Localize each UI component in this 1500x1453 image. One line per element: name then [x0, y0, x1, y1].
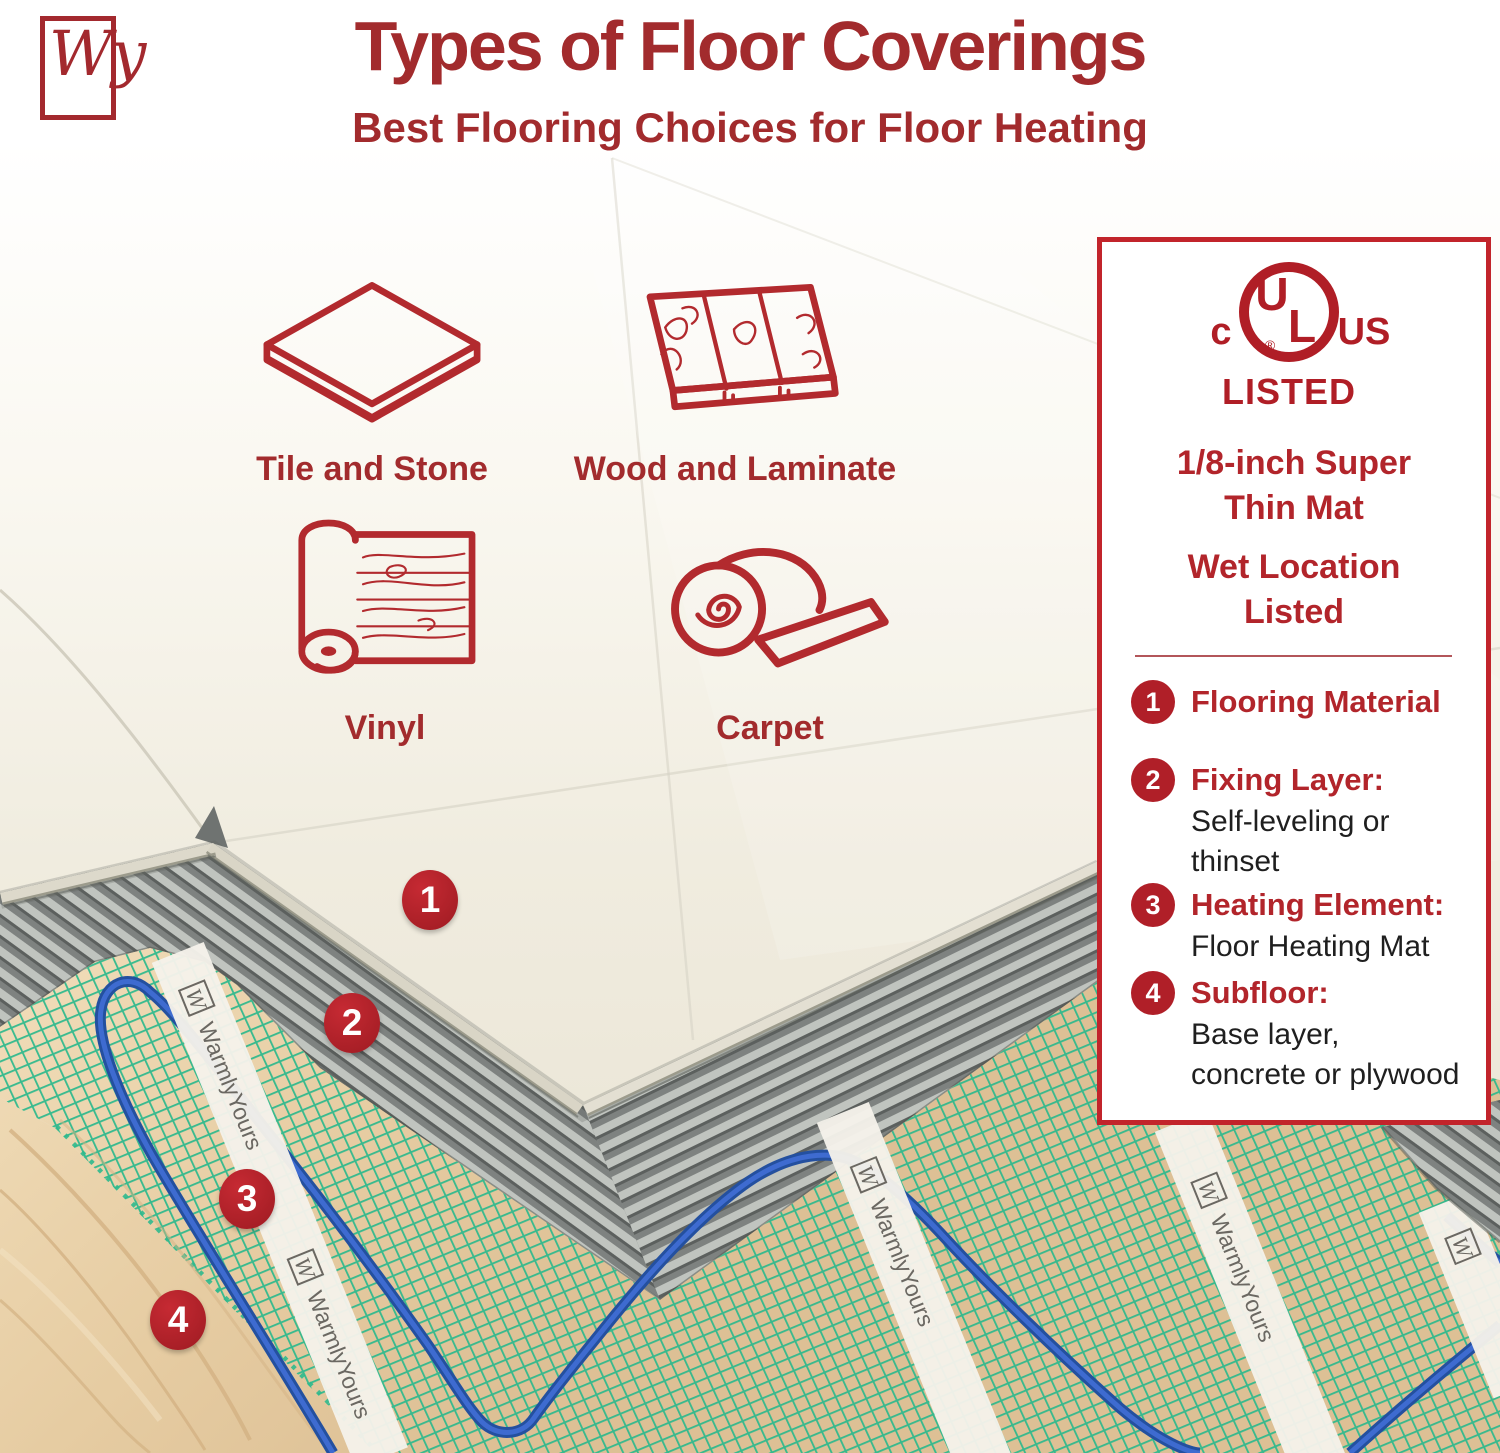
infographic-page: W WarmlyYours W WarmlyYours W WarmlyYour… — [0, 0, 1500, 1453]
wet-location-heading: Wet Location Listed — [1102, 545, 1486, 635]
info-panel: U L ® c US LISTED 1/8-inch Super Thin Ma… — [1097, 237, 1491, 1125]
mat-heading: 1/8-inch Super Thin Mat — [1102, 441, 1486, 531]
legend-number-badge: 3 — [1131, 883, 1175, 927]
ul-listed-icon: U L ® c US LISTED — [1164, 248, 1414, 416]
flooring-type-tile: Tile and Stone — [222, 272, 522, 489]
svg-text:®: ® — [1265, 337, 1276, 353]
marker-subfloor: 4 — [150, 1290, 206, 1350]
flooring-type-label: Tile and Stone — [222, 450, 522, 489]
legend-item-subfloor: 4 Subfloor: Base layer, concrete or plyw… — [1131, 971, 1461, 1095]
marker-number: 4 — [168, 1299, 189, 1341]
wood-and-laminate-icon — [610, 272, 860, 444]
page-subtitle: Best Flooring Choices for Floor Heating — [0, 104, 1500, 152]
legend-item-fixing-layer: 2 Fixing Layer: Self-leveling or thinset — [1131, 758, 1461, 882]
legend-number-badge: 1 — [1131, 680, 1175, 724]
marker-fixing-layer: 2 — [324, 993, 380, 1053]
marker-number: 1 — [420, 879, 441, 921]
svg-text:LISTED: LISTED — [1222, 371, 1356, 412]
legend-number-badge: 4 — [1131, 971, 1175, 1015]
marker-flooring-material: 1 — [402, 870, 458, 930]
flooring-type-label: Vinyl — [275, 709, 495, 748]
marker-heating-element: 3 — [219, 1169, 275, 1229]
svg-text:L: L — [1288, 300, 1316, 352]
legend-number-badge: 2 — [1131, 758, 1175, 802]
svg-text:US: US — [1338, 311, 1391, 353]
flooring-type-carpet: Carpet — [630, 515, 910, 748]
legend-item-heating-element: 3 Heating Element: Floor Heating Mat — [1131, 883, 1461, 967]
flooring-type-wood: Wood and Laminate — [565, 272, 905, 489]
page-title: Types of Floor Coverings — [0, 6, 1500, 86]
svg-text:c: c — [1210, 311, 1231, 353]
marker-number: 3 — [237, 1178, 258, 1220]
panel-divider — [1135, 655, 1452, 657]
flooring-type-label: Wood and Laminate — [565, 450, 905, 489]
legend-item-flooring-material: 1 Flooring Material — [1131, 680, 1461, 724]
marker-number: 2 — [342, 1002, 363, 1044]
vinyl-roll-icon — [275, 498, 495, 703]
tile-and-stone-icon — [252, 272, 492, 444]
flooring-type-label: Carpet — [630, 709, 910, 748]
svg-text:U: U — [1255, 268, 1288, 320]
carpet-roll-icon — [640, 515, 900, 703]
flooring-type-vinyl: Vinyl — [275, 498, 495, 748]
